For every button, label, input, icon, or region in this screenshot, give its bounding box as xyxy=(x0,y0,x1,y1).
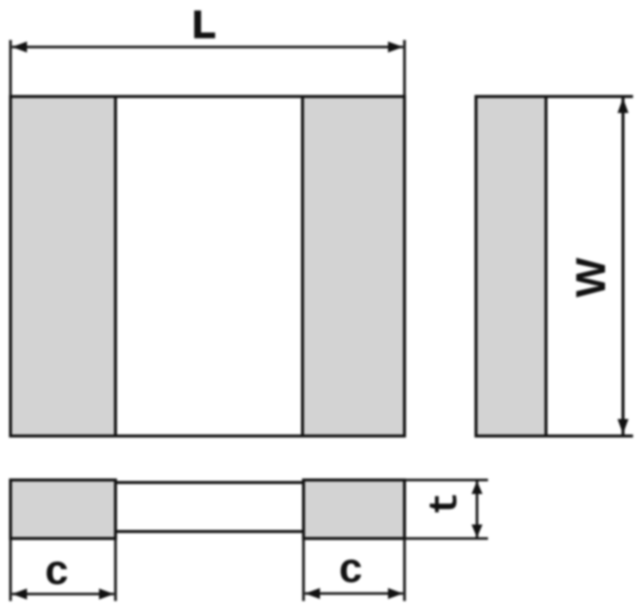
svg-text:t: t xyxy=(425,491,470,515)
svg-text:c: c xyxy=(338,547,363,595)
svg-text:W: W xyxy=(567,257,614,297)
svg-text:c: c xyxy=(44,549,69,597)
svg-text:L: L xyxy=(192,5,215,47)
